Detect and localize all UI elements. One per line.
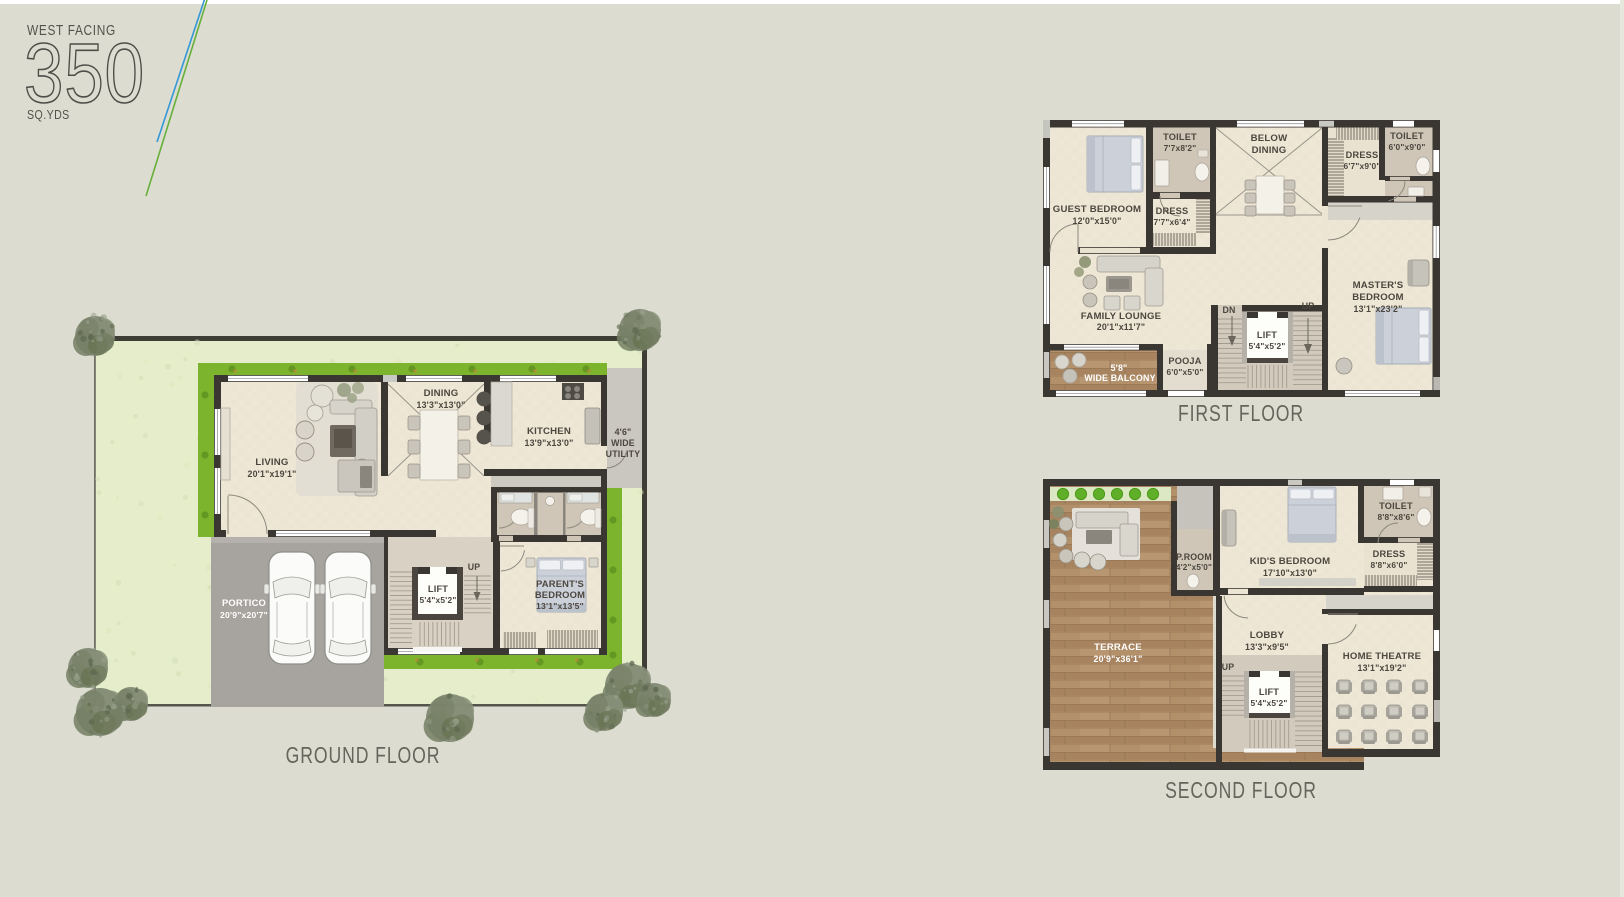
svg-text:LOBBY: LOBBY: [1250, 630, 1285, 641]
svg-text:6'0"x9'0": 6'0"x9'0": [1388, 142, 1425, 152]
svg-text:17'10"x13'0": 17'10"x13'0": [1263, 568, 1317, 578]
svg-text:DN: DN: [1222, 305, 1235, 315]
svg-text:5'4"x5'2": 5'4"x5'2": [419, 595, 456, 605]
svg-text:DRESS: DRESS: [1373, 549, 1406, 559]
svg-text:13'1"x23'2": 13'1"x23'2": [1354, 304, 1403, 314]
svg-text:UP: UP: [468, 562, 481, 572]
svg-text:BEDROOM: BEDROOM: [1352, 292, 1404, 303]
svg-text:PORTICO: PORTICO: [222, 597, 266, 608]
svg-text:6'0"x5'0": 6'0"x5'0": [1166, 367, 1203, 377]
svg-text:350: 350: [24, 27, 145, 120]
svg-text:DINING: DINING: [424, 388, 459, 399]
svg-text:4'6": 4'6": [615, 427, 632, 437]
svg-text:4'2"x5'0": 4'2"x5'0": [1176, 563, 1212, 572]
svg-text:13'1"x19'2": 13'1"x19'2": [1358, 663, 1407, 673]
svg-text:PARENT'S: PARENT'S: [536, 578, 584, 589]
svg-text:TOILET: TOILET: [1390, 131, 1424, 141]
svg-text:13'3"x9'5": 13'3"x9'5": [1245, 642, 1289, 652]
svg-text:WIDE: WIDE: [611, 438, 635, 448]
svg-text:8'8"x8'6": 8'8"x8'6": [1377, 512, 1414, 522]
svg-text:TOILET: TOILET: [1163, 132, 1197, 142]
svg-text:7'7x8'2": 7'7x8'2": [1164, 143, 1197, 153]
svg-text:LIFT: LIFT: [428, 584, 448, 594]
svg-text:DRESS: DRESS: [1346, 150, 1379, 160]
svg-text:WIDE BALCONY: WIDE BALCONY: [1084, 373, 1155, 383]
svg-text:HOME THEATRE: HOME THEATRE: [1343, 651, 1422, 662]
svg-text:LIFT: LIFT: [1257, 330, 1277, 340]
svg-text:DINING: DINING: [1252, 145, 1287, 156]
svg-text:TOILET: TOILET: [1379, 501, 1413, 511]
svg-text:SQ.YDS: SQ.YDS: [27, 108, 70, 122]
svg-text:SECOND FLOOR: SECOND FLOOR: [1165, 778, 1317, 804]
svg-text:20'9"x20'7": 20'9"x20'7": [220, 610, 268, 620]
svg-text:UTILITY: UTILITY: [606, 449, 641, 459]
svg-text:GUEST BEDROOM: GUEST BEDROOM: [1053, 204, 1141, 215]
svg-text:TERRACE: TERRACE: [1094, 642, 1142, 653]
svg-text:LIFT: LIFT: [1259, 687, 1279, 697]
svg-text:20'1"x19'1": 20'1"x19'1": [248, 469, 297, 479]
svg-text:BELOW: BELOW: [1251, 133, 1288, 144]
svg-text:UP: UP: [1302, 301, 1315, 311]
svg-text:BEDROOM: BEDROOM: [535, 589, 585, 600]
svg-text:20'1"x11'7": 20'1"x11'7": [1097, 322, 1146, 332]
svg-text:5'4"x5'2": 5'4"x5'2": [1250, 698, 1287, 708]
svg-text:FIRST FLOOR: FIRST FLOOR: [1178, 401, 1304, 427]
svg-text:5'8": 5'8": [1111, 363, 1128, 373]
svg-text:7'7"x6'4": 7'7"x6'4": [1153, 217, 1190, 227]
svg-text:POOJA: POOJA: [1168, 356, 1201, 366]
svg-text:20'9"x36'1": 20'9"x36'1": [1094, 654, 1143, 664]
svg-text:MASTER'S: MASTER'S: [1353, 280, 1404, 291]
svg-text:KID'S BEDROOM: KID'S BEDROOM: [1250, 556, 1331, 567]
svg-text:5'4"x5'2": 5'4"x5'2": [1248, 341, 1285, 351]
svg-text:FAMILY LOUNGE: FAMILY LOUNGE: [1081, 311, 1162, 322]
svg-text:LIVING: LIVING: [255, 457, 288, 468]
svg-text:UP: UP: [1222, 662, 1235, 672]
svg-text:8'8"x6'0": 8'8"x6'0": [1370, 560, 1407, 570]
svg-text:13'3"x13'0": 13'3"x13'0": [417, 400, 466, 410]
svg-text:13'9"x13'0": 13'9"x13'0": [525, 438, 574, 448]
svg-text:13'1"x13'5": 13'1"x13'5": [536, 601, 584, 611]
svg-text:GROUND FLOOR: GROUND FLOOR: [286, 743, 441, 769]
svg-text:12'0"x15'0": 12'0"x15'0": [1073, 216, 1122, 226]
svg-text:6'7"x9'0": 6'7"x9'0": [1343, 161, 1380, 171]
svg-text:DRESS: DRESS: [1156, 206, 1189, 216]
svg-text:KITCHEN: KITCHEN: [527, 426, 571, 437]
svg-text:P.ROOM: P.ROOM: [1176, 552, 1212, 562]
